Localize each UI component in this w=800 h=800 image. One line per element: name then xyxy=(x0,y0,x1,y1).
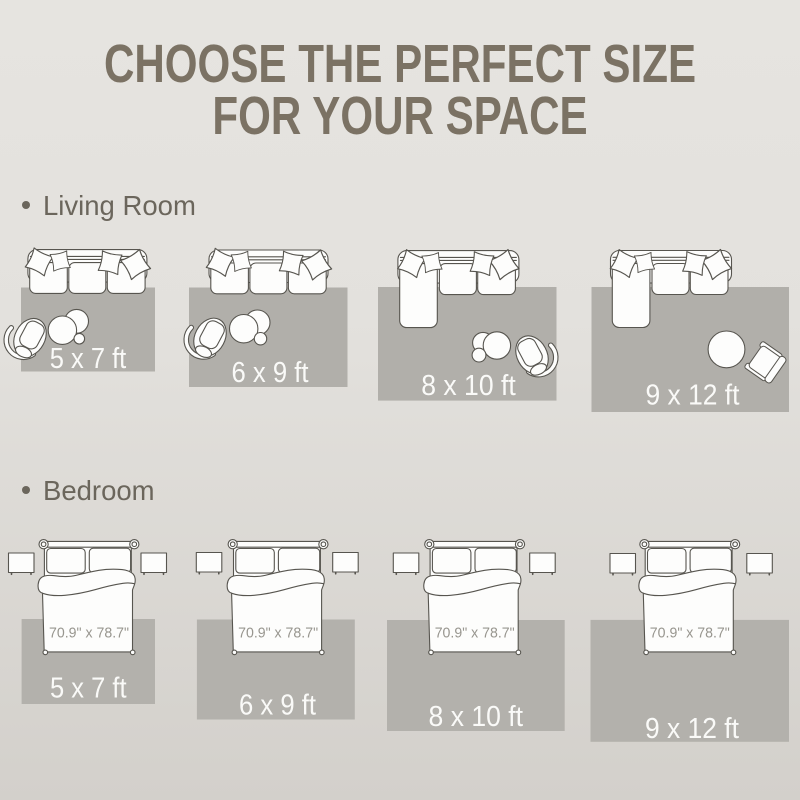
svg-text:70.9" x 78.7": 70.9" x 78.7" xyxy=(650,625,730,642)
svg-text:5 x 7 ft: 5 x 7 ft xyxy=(50,673,127,705)
svg-text:9 x 12 ft: 9 x 12 ft xyxy=(646,380,740,412)
svg-text:6 x 9 ft: 6 x 9 ft xyxy=(239,690,316,722)
svg-text:8 x 10 ft: 8 x 10 ft xyxy=(421,370,516,402)
svg-text:70.9" x 78.7": 70.9" x 78.7" xyxy=(435,625,515,642)
svg-text:5 x 7 ft: 5 x 7 ft xyxy=(50,343,127,375)
svg-text:9 x 12 ft: 9 x 12 ft xyxy=(645,713,739,745)
svg-text:70.9" x 78.7": 70.9" x 78.7" xyxy=(49,625,129,642)
svg-text:6 x 9 ft: 6 x 9 ft xyxy=(232,357,309,389)
svg-text:8 x 10 ft: 8 x 10 ft xyxy=(429,701,524,733)
svg-text:70.9" x 78.7": 70.9" x 78.7" xyxy=(238,625,318,642)
